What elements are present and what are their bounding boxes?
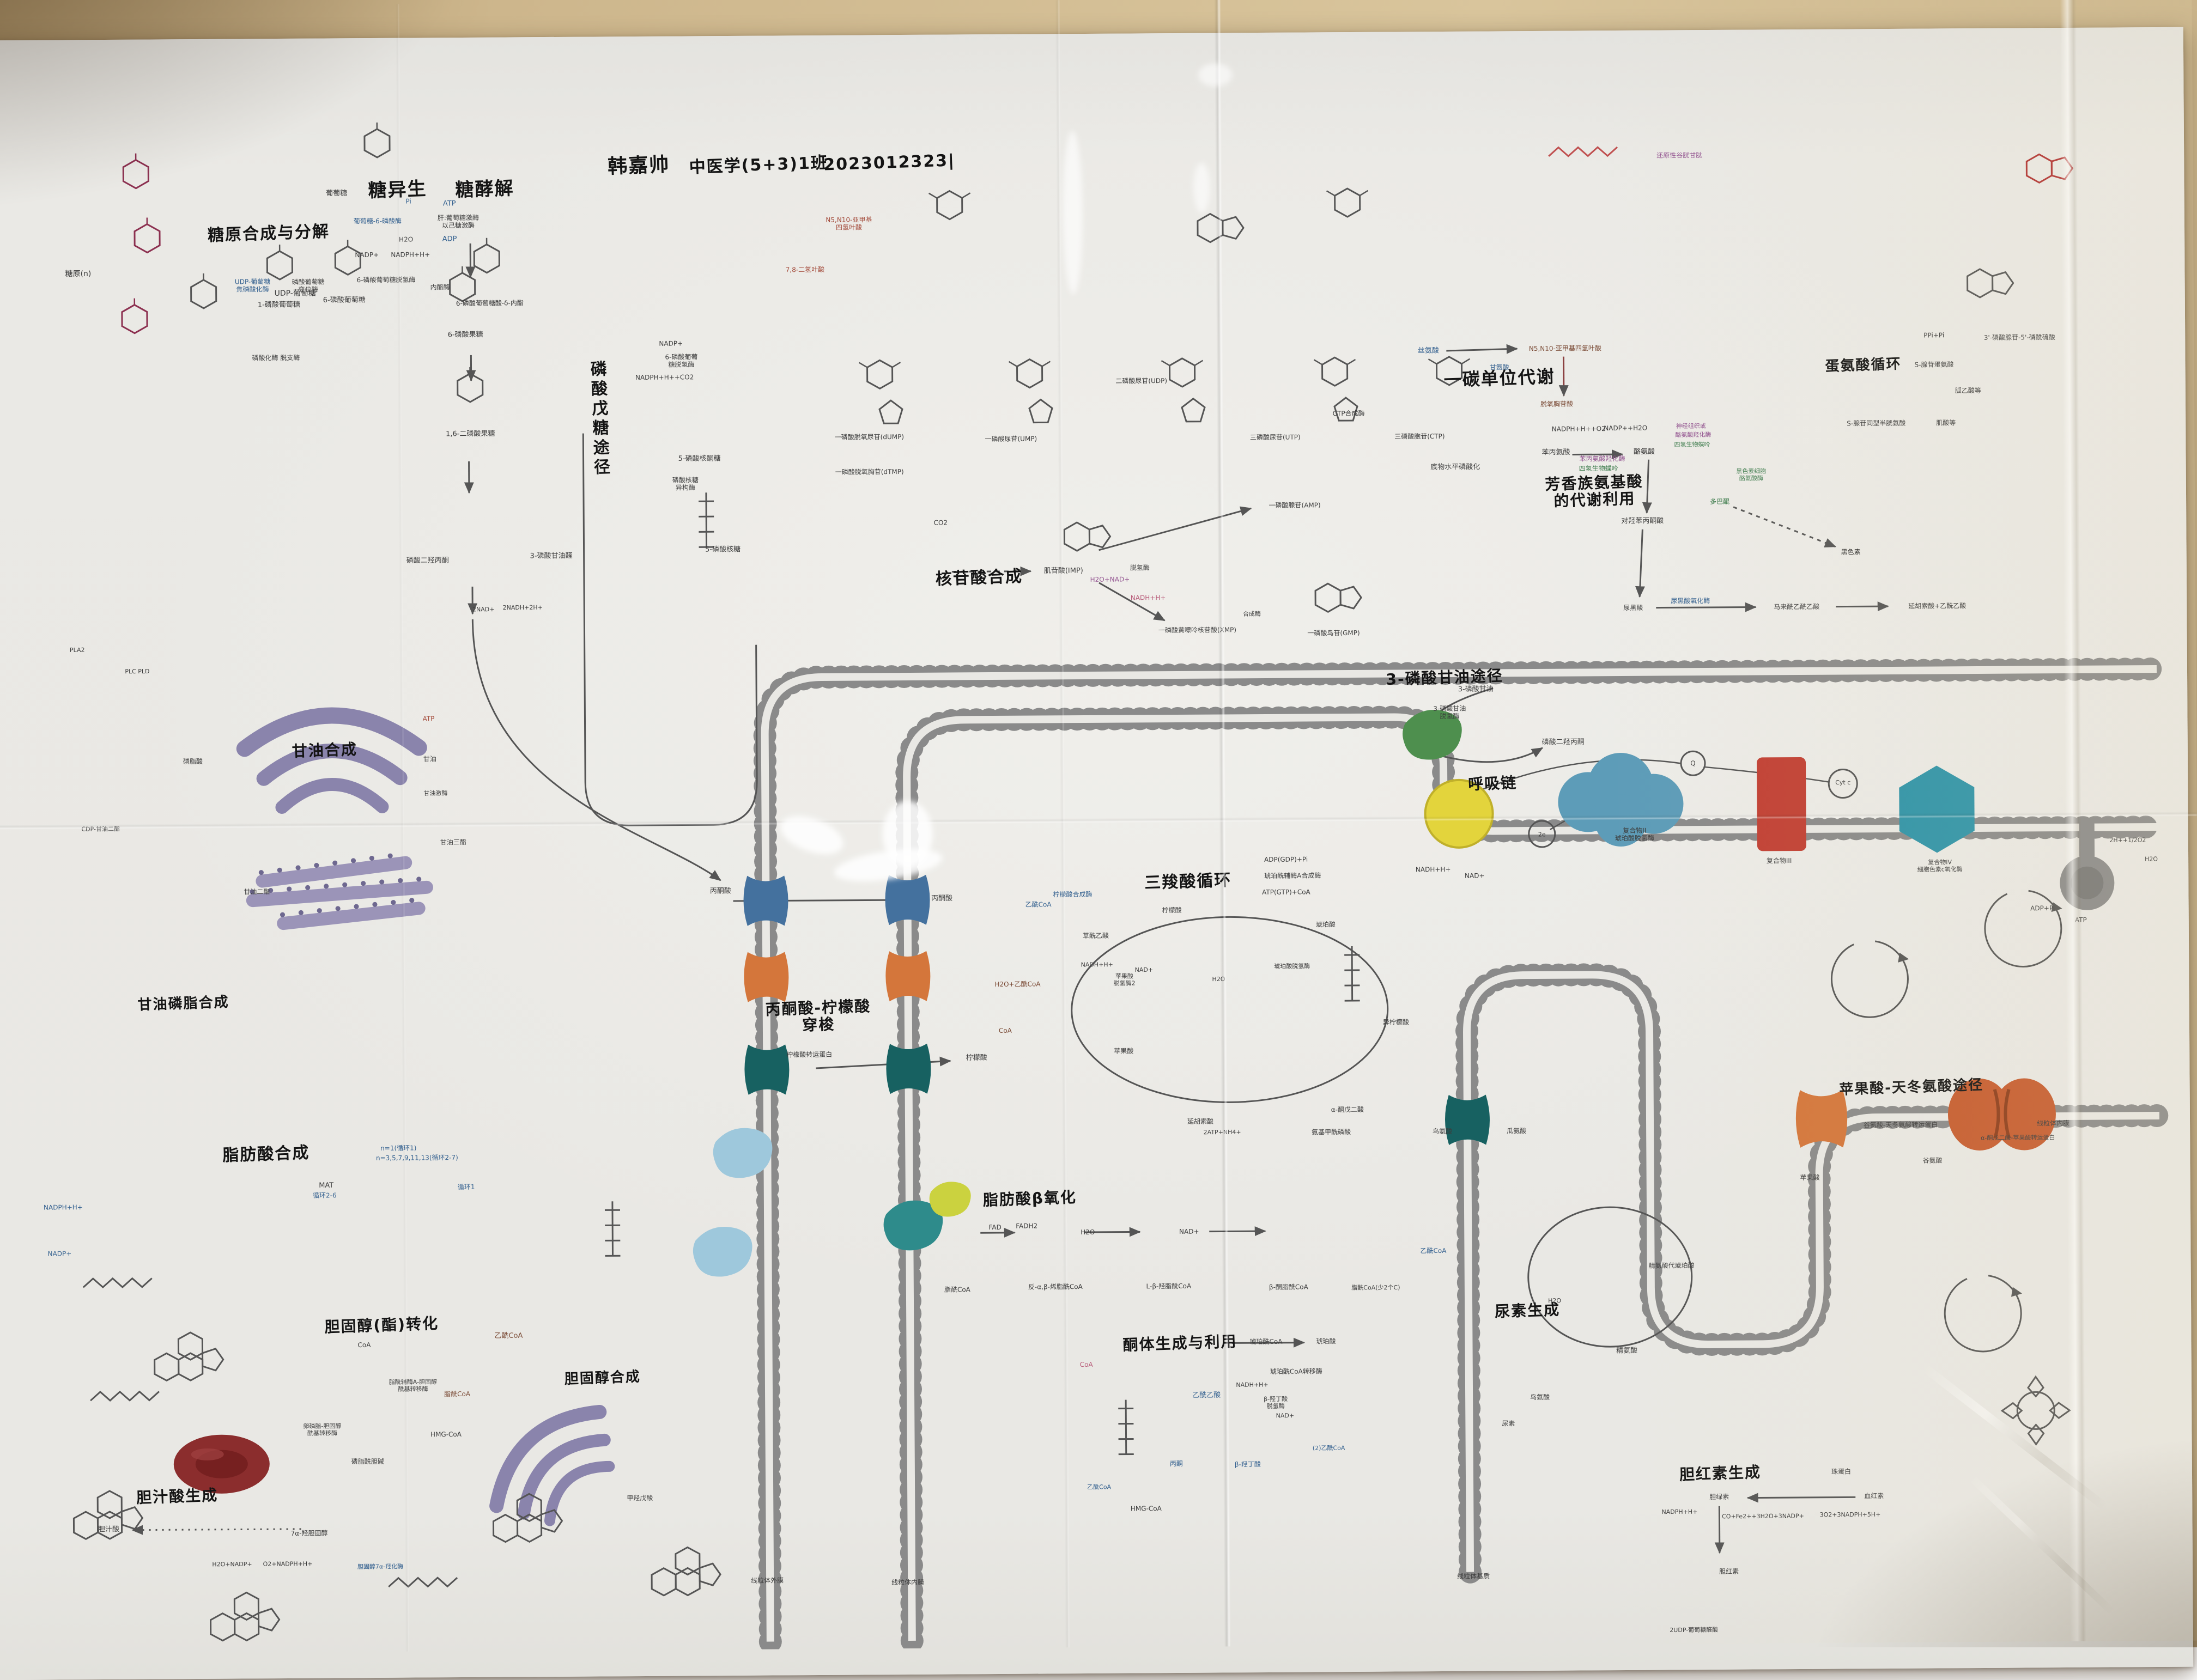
metabolic-pathway-poster: 韩嘉帅 中医学(5+3)1班 2023012323| 糖异生糖酵解糖原合成与分解… <box>0 27 2193 1680</box>
molecule-label: 磷酸化酶 脱支酶 <box>252 354 300 362</box>
molecule-label: 6-磷酸葡萄糖酸-δ-内酯 <box>456 299 524 307</box>
molecule-label: 乙酰CoA <box>1087 1484 1111 1491</box>
molecule-label: NADP+ <box>355 251 379 259</box>
molecule-label: 酪氨酸羟化酶 <box>1675 431 1711 439</box>
molecule-label: 延胡索酸+乙酰乙酸 <box>1908 602 1966 610</box>
section-title-glycogen-synthesis-breakdown: 糖原合成与分解 <box>208 223 330 245</box>
molecule-label: 丙酮酸 <box>931 894 952 903</box>
molecule-label: NADH+H+ <box>1236 1381 1268 1389</box>
molecule-label: 多巴醌 <box>1710 498 1729 506</box>
molecule-label: FAD <box>989 1224 1002 1231</box>
pur-glyph <box>1315 583 1361 612</box>
molecule-label: ADP <box>442 235 457 243</box>
molecule-label: 磷酸葡萄糖 变位酶 <box>292 278 325 294</box>
pyruvate-transporter-inner <box>885 875 930 925</box>
molecule-label: 1-磷酸葡萄糖 <box>258 301 300 309</box>
molecule-label: MAT <box>319 1182 333 1190</box>
pent-glyph <box>879 400 902 423</box>
molecule-label: 磷酸核糖 异构酶 <box>672 476 699 492</box>
molecule-label: 复合物IV 细胞色素c氧化酶 <box>1917 859 1963 873</box>
hex-glyph <box>123 153 148 188</box>
tape-strip <box>1198 63 1232 86</box>
chain-glyph <box>699 492 714 547</box>
molecule-label: 线粒体内膜 <box>891 1579 924 1587</box>
molecule-label: NAD+ <box>1179 1228 1199 1235</box>
molecule-label: 脱氢酶 <box>1130 564 1150 571</box>
molecule-label: 三磷酸胞苷(CTP) <box>1394 433 1445 441</box>
molecule-label: PLC PLD <box>125 668 149 675</box>
citrate-transporter-outer <box>744 1044 790 1094</box>
tca-cycle-ring <box>1071 916 1388 1104</box>
hex-glyph <box>122 299 147 333</box>
zig-glyph <box>389 1578 457 1587</box>
pent-glyph <box>1029 399 1052 422</box>
molecule-label: Pi <box>405 197 411 205</box>
molecule-label: 三磷酸尿苷(UTP) <box>1250 434 1301 442</box>
molecule-label: n=3,5,7,9,11,13(循环2-7) <box>376 1154 458 1162</box>
ketoglutarate-malate-transporter-outer <box>744 952 789 1002</box>
molecule-label: 一磷酸脱氧胸苷(dTMP) <box>835 468 904 476</box>
molecule-label: 甘油激酶 <box>423 790 447 798</box>
molecule-label: 鸟氨酸 <box>1433 1128 1452 1135</box>
molecule-label: FADH2 <box>1016 1222 1037 1229</box>
molecule-label: 葡萄糖 <box>326 190 347 198</box>
molecule-label: 脱氧胸苷酸 <box>1540 400 1573 408</box>
molecule-label: CoA <box>1080 1361 1093 1368</box>
hex-glyph <box>365 123 390 157</box>
molecule-label: 2ATP+NH4+ <box>1204 1129 1241 1136</box>
molecule-label: S-腺苷蛋氨酸 <box>1915 361 1954 369</box>
molecule-label: 苹果酸 <box>1800 1174 1820 1182</box>
molecule-label: H2O+NADP+ <box>212 1561 252 1568</box>
molecule-label: 复合物II 琥珀酸脱氢酶 <box>1615 826 1654 842</box>
molecule-label: 2UDP-葡萄糖醛酸 <box>1670 1627 1718 1634</box>
section-title-cholesterol-synthesis: 胆固醇合成 <box>564 1369 641 1388</box>
molecule-label: α-酮戊二酸-苹果酸转运蛋白 <box>1981 1135 2055 1142</box>
molecule-label: 磷酸二羟丙酮 <box>1542 738 1585 747</box>
molecule-label: 2H++1/2O2 <box>2109 837 2146 844</box>
molecule-label: 一磷酸鸟苷(GMP) <box>1307 629 1360 637</box>
hex-glyph <box>458 367 483 402</box>
cyc-glyph <box>1984 890 2062 967</box>
molecule-label: β-酮脂酰CoA <box>1269 1283 1308 1291</box>
molecule-label: 琥珀酸 <box>1316 1337 1336 1345</box>
smooth-er <box>479 1393 631 1541</box>
pyr-glyph <box>1009 359 1050 387</box>
molecule-label: ATP <box>2075 916 2087 924</box>
molecule-label: 6-磷酸葡萄 糖脱氢酶 <box>665 353 697 369</box>
molecule-label: 6-磷酸葡萄糖 <box>323 296 366 305</box>
molecule-label: NADH+H+ <box>1081 961 1113 969</box>
zig-glyph <box>83 1278 152 1287</box>
molecule-label: H2O+乙酰CoA <box>994 980 1040 988</box>
photo-scene: 韩嘉帅 中医学(5+3)1班 2023012323| 糖异生糖酵解糖原合成与分解… <box>0 0 2197 1647</box>
section-title-nucleotide-synthesis: 核苷酸合成 <box>935 568 1023 589</box>
molecule-label: 2NAD+ <box>472 606 495 613</box>
molecule-label: 3-磷酸甘油醛 <box>530 552 573 561</box>
pyr-glyph <box>929 191 970 219</box>
molecule-label: NADH+H+ <box>1131 594 1166 602</box>
molecule-label: ADP(GDP)+Pi <box>1264 855 1308 863</box>
molecule-label: 对羟苯丙酮酸 <box>1621 517 1664 526</box>
golgi-apparatus <box>244 715 419 807</box>
molecule-label: 丙酮 <box>1170 1460 1183 1468</box>
molecule-label: 复合物III <box>1767 857 1792 865</box>
molecule-label: 谷氨酸 <box>1922 1156 1942 1164</box>
molecule-label: NADP+ <box>48 1250 72 1257</box>
molecule-label: 二磷酸尿苷(UDP) <box>1115 377 1167 385</box>
pur-glyph <box>2026 154 2072 183</box>
molecule-label: 鸟氨酸 <box>1530 1393 1550 1401</box>
molecule-label: 3-磷酸甘油 <box>1458 685 1494 694</box>
section-title-bilirubin-synthesis: 胆红素生成 <box>1679 1464 1761 1483</box>
molecule-label: 内酯酶 <box>430 283 450 291</box>
chain-glyph <box>605 1201 621 1256</box>
molecule-label: (2)乙酰CoA <box>1313 1445 1345 1452</box>
molecule-label: HMG-CoA <box>430 1431 462 1439</box>
section-title-glycerol-synthesis: 甘油合成 <box>292 741 357 760</box>
molecule-label: 谷氨酸-天冬氨酸转运蛋白 <box>1864 1121 1938 1129</box>
molecule-label: CDP-甘油二酯 <box>81 826 120 833</box>
molecule-label: CoA <box>999 1027 1012 1034</box>
hex-glyph <box>135 217 160 252</box>
membrane-transporters <box>690 706 2057 1277</box>
molecule-label: S-腺苷同型半胱氨酸 <box>1847 419 1905 428</box>
molecule-label: 延胡索酸 <box>1187 1118 1213 1125</box>
molecule-label: α-酮戊二酸 <box>1331 1106 1364 1114</box>
molecule-label: 6-磷酸果糖 <box>448 331 483 339</box>
molecule-label: 线粒体基质 <box>1457 1572 1490 1580</box>
molecule-label: CO+Fe2++3H2O+3NADP+ <box>1722 1513 1804 1520</box>
molecule-label: NADPH+H+ <box>1661 1509 1697 1516</box>
molecule-label: 苹果酸 <box>1114 1047 1133 1055</box>
molecule-label: 肌苷酸(IMP) <box>1044 567 1083 575</box>
ster-glyph <box>210 1592 280 1641</box>
molecule-label: 2e <box>1538 831 1546 838</box>
citrate-transporter-inner <box>886 1044 931 1094</box>
carnitine-acyltransferase-1 <box>693 1227 752 1277</box>
molecule-label: Cyt c <box>1835 780 1850 787</box>
molecule-label: H2O <box>399 235 413 243</box>
section-title-fatty-acid-synthesis: 脂肪酸合成 <box>222 1144 310 1165</box>
molecule-label: 四氢生物蝶呤 <box>1579 465 1618 473</box>
chemical-structure-glyphs <box>65 112 2081 1641</box>
section-title-glycolysis: 糖酵解 <box>455 178 514 201</box>
molecule-label: NAD+ <box>1135 967 1154 974</box>
molecule-label: 甘油 <box>423 755 436 763</box>
student-name: 韩嘉帅 <box>608 154 670 178</box>
molecule-label: PPi+Pi <box>1923 331 1944 339</box>
molecule-label: 胍乙酸等 <box>1955 387 1981 394</box>
molecule-label: CO2 <box>934 519 948 526</box>
molecule-label: 一磷酸脱氧尿苷(dUMP) <box>835 433 904 441</box>
pyruvate-transporter-outer <box>743 875 788 926</box>
section-title-methionine-cycle: 蛋氨酸循环 <box>1825 356 1902 375</box>
red-blood-cell <box>173 1434 270 1494</box>
molecule-label: 糖原(n) <box>65 270 92 279</box>
pyr-glyph <box>1314 357 1355 386</box>
molecule-label: 神经组织或 <box>1676 423 1706 430</box>
molecule-label: NADPH+H++O2 <box>1552 425 1606 433</box>
molecule-label: 脂酰辅酶A-胆固醇 酰基转移酶 <box>389 1379 437 1393</box>
molecule-label: 一磷酸尿苷(UMP) <box>985 435 1037 443</box>
molecule-label: β-羟丁酸 <box>1235 1460 1261 1468</box>
molecule-label: H2O <box>1081 1228 1095 1236</box>
molecule-label: 柠檬酸 <box>966 1054 987 1062</box>
hex-glyph <box>191 273 216 308</box>
molecule-label: CTP合成酶 <box>1333 410 1365 418</box>
molecule-label: 琥珀酰辅酶A合成酶 <box>1264 872 1321 880</box>
molecule-label: 葡萄糖-6-磷酸酶 <box>354 217 402 226</box>
tape-strip <box>1193 163 1210 213</box>
molecule-label: 1,6-二磷酸果糖 <box>446 430 495 439</box>
molecule-label: O2+NADPH+H+ <box>263 1561 313 1568</box>
ster-glyph <box>154 1332 223 1381</box>
molecule-label: ATP <box>443 199 456 208</box>
complex-iv <box>1899 765 1975 853</box>
section-title-aromatic-aa-metabolism: 芳香族氨基酸 的代谢利用 <box>1545 473 1644 510</box>
molecule-label: 珠蛋白 <box>1831 1468 1851 1475</box>
molecule-label: 黑色素细胞 酪氨酸酶 <box>1736 468 1766 482</box>
molecule-label: 2NADH+2H+ <box>503 605 543 612</box>
molecule-label: 精氨酸 <box>1616 1347 1637 1355</box>
section-title-glycerophospholipid-synthesis: 甘油磷脂合成 <box>137 995 229 1014</box>
molecule-label: NADPH+H+ <box>391 251 430 259</box>
molecule-label: 琥珀酰CoA <box>1249 1338 1282 1346</box>
pyr-glyph <box>1327 188 1368 217</box>
molecule-label: 一磷酸腺苷(AMP) <box>1269 501 1320 509</box>
molecule-label: 琥珀酸脱氢酶 <box>1274 963 1310 970</box>
molecule-label: 甘油三酯 <box>440 838 466 846</box>
molecule-label: 胆绿素 <box>1709 1493 1729 1501</box>
molecule-label: 3-磷酸甘油 脱氢酶 <box>1433 705 1466 721</box>
pentose-loop <box>583 433 757 826</box>
molecule-label: 胆固醇7α-羟化酶 <box>357 1563 403 1571</box>
section-title-respiratory-chain: 呼吸链 <box>1468 774 1518 793</box>
molecule-label: H2O <box>1212 976 1225 983</box>
molecule-label: 尿黑酸 <box>1623 604 1643 612</box>
molecule-label: 脂酰CoA <box>444 1390 470 1398</box>
molecule-label: ATP <box>422 715 434 722</box>
zig-glyph <box>90 1391 159 1401</box>
molecule-label: 苹果酸 脱氢酶2 <box>1113 973 1135 987</box>
complex-iii <box>1757 757 1806 851</box>
molecule-label: N5,N10-亚甲基四氢叶酸 <box>1529 344 1601 352</box>
mito-inner-membrane-right <box>1466 971 2162 1572</box>
molecule-label: 酪氨酸 <box>1634 448 1655 456</box>
cyc-glyph <box>1831 941 1909 1018</box>
molecule-label: 线粒体内膜 <box>2037 1119 2069 1128</box>
urea-cycle-ring <box>1528 1207 1692 1347</box>
carnitine-translocase <box>929 1182 970 1217</box>
molecule-label: 马来酰乙酰乙酸 <box>1774 603 1819 611</box>
molecule-label: 甲羟戊酸 <box>627 1494 653 1502</box>
molecule-label: 5-磷酸核酮糖 <box>678 454 721 463</box>
molecule-label: ADP+Pi <box>2030 904 2055 912</box>
molecule-label: 肝:葡萄糖激酶 以己糖激酶 <box>438 214 479 230</box>
molecule-label: CoA <box>357 1341 371 1349</box>
section-title-pyruvate-citrate-shuttle: 丙酮酸-柠檬酸 穿梭 <box>765 997 872 1035</box>
pur-glyph <box>1064 522 1110 551</box>
molecule-label: β-羟丁酸 脱氢酶 <box>1264 1396 1288 1410</box>
molecule-label: L-β-羟脂酰CoA <box>1146 1282 1191 1291</box>
molecule-label: 异柠檬酸 <box>1383 1018 1409 1026</box>
pyr-glyph <box>859 360 900 388</box>
molecule-label: 循环2-6 <box>313 1191 337 1199</box>
pent-glyph <box>1182 399 1205 422</box>
molecule-label: 血红素 <box>1864 1492 1884 1500</box>
section-title-cholesterol-ester-conversion: 胆固醇(酯)转化 <box>324 1315 439 1336</box>
molecule-label: 脂酰CoA <box>944 1286 970 1293</box>
molecule-label: 氨基甲酰磷酸 <box>1312 1128 1351 1136</box>
section-title-tca-cycle: 三羧酸循环 <box>1144 871 1232 892</box>
pur-glyph <box>1198 214 1243 242</box>
molecule-label: 乙酰CoA <box>1025 900 1052 908</box>
molecule-label: 柠檬酸合成酶 <box>1053 891 1092 899</box>
molecule-label: PLA2 <box>70 647 85 654</box>
molecule-label: 磷脂酰胆碱 <box>351 1458 384 1466</box>
molecule-label: 7,8-二氢叶酸 <box>786 266 825 274</box>
pathway-arrows <box>124 235 1894 1563</box>
molecule-label: 一磷酸黄嘌呤核苷酸(XMP) <box>1158 626 1236 634</box>
molecule-label: 尿黑酸氧化酶 <box>1671 597 1710 605</box>
molecule-label: 线粒体外膜 <box>751 1576 784 1585</box>
pur-glyph <box>1967 269 2013 298</box>
molecule-label: NADH+H+ <box>1416 866 1451 874</box>
molecule-label: 乙酰乙酸 <box>1192 1391 1221 1400</box>
molecule-label: 5-磷酸核糖 <box>705 545 741 554</box>
molecule-label: 还原性谷胱甘肽 <box>1656 151 1702 160</box>
section-title-fatty-acid-beta-oxidation: 脂肪酸β氧化 <box>982 1189 1077 1209</box>
molecule-label: 磷酸二羟丙酮 <box>406 556 449 565</box>
molecule-label: ATP(GTP)+CoA <box>1262 888 1310 896</box>
molecule-label: NADPH+H+ <box>44 1203 83 1212</box>
molecule-label: NADP+ <box>659 339 683 347</box>
zig-glyph <box>1549 147 1617 156</box>
molecule-label: 6-磷酸葡萄糖脱氢酶 <box>357 276 416 284</box>
molecule-label: H2O <box>1548 1298 1561 1305</box>
rough-er <box>252 854 427 923</box>
molecule-label: NAD+ <box>1465 872 1485 879</box>
molecule-label: 琥珀酸 <box>1316 921 1336 928</box>
section-title-bile-acid-synthesis: 胆汁酸生成 <box>136 1487 219 1506</box>
molecule-label: 乙酰CoA <box>1420 1247 1446 1255</box>
section-title-ketone-body-synthesis-utilization: 酮体生成与利用 <box>1122 1333 1237 1354</box>
molecule-label: 磷脂酸 <box>183 758 203 765</box>
ster-glyph <box>652 1547 721 1596</box>
molecule-label: HMG-CoA <box>1131 1505 1162 1513</box>
molecule-label: UDP-葡萄糖 焦磷酸化酶 <box>235 278 270 294</box>
molecule-label: 瓜氨酸 <box>1507 1127 1526 1135</box>
cyc-glyph <box>1945 1275 2023 1352</box>
molecule-label: NADP++H2O <box>1604 424 1647 433</box>
hex-glyph <box>267 245 292 279</box>
molecule-label: N5,N10-亚甲基 四氢叶酸 <box>826 216 872 232</box>
molecule-label: 反-α,β-烯脂酰CoA <box>1028 1283 1083 1291</box>
paper-scuff <box>882 801 933 868</box>
diagram-artwork <box>0 0 2197 1654</box>
chain-glyph <box>1118 1399 1134 1454</box>
molecule-label: 琥珀酰CoA转移酶 <box>1270 1367 1322 1375</box>
molecule-label: 尿素 <box>1502 1420 1515 1427</box>
chain-glyph <box>1344 946 1360 1001</box>
molecule-label: NADPH+H++CO2 <box>635 373 694 381</box>
molecule-label: 丝氨酸 <box>1418 346 1439 355</box>
molecule-label: 脂酰CoA(少2个C) <box>1351 1285 1400 1292</box>
molecule-label: 卵磷脂-胆固醇 酰基转移酶 <box>303 1423 341 1437</box>
molecule-label: 柠檬酸转运蛋白 <box>786 1051 832 1059</box>
mito-inner-membrane <box>906 713 2162 1641</box>
molecule-label: n=1(循环1) <box>380 1144 416 1152</box>
molecule-label: 胆汁酸 <box>98 1525 119 1534</box>
glutamate-aspartate-transporter <box>1796 1090 1848 1148</box>
molecule-label: H2O+NAD+ <box>1090 575 1130 583</box>
molecule-label: 草酰乙酸 <box>1083 932 1109 940</box>
molecule-label: 甘油二酯 <box>244 888 270 896</box>
molecule-label: 苯丙氨酸羟化酶 <box>1580 455 1625 463</box>
molecule-label: 7α-羟胆固醇 <box>291 1529 328 1537</box>
molecule-label: Q <box>1690 759 1696 767</box>
molecule-label: 丙酮酸 <box>710 887 731 896</box>
molecule-label: 循环1 <box>458 1183 475 1191</box>
molecule-label: 乙酰CoA <box>494 1332 523 1341</box>
molecule-label: 底物水平磷酸化 <box>1430 463 1480 472</box>
section-title-pentose-phosphate-pathway: 磷酸戊糖途径 <box>587 360 610 478</box>
molecule-label: 3O2+3NADPH+5H+ <box>1820 1512 1881 1519</box>
molecule-label: 肌酸等 <box>1936 419 1956 427</box>
pyr-glyph <box>1161 358 1203 387</box>
section-title-gluconeogenesis: 糖异生 <box>368 179 427 202</box>
poster-content: 韩嘉帅 中医学(5+3)1班 2023012323| 糖异生糖酵解糖原合成与分解… <box>0 0 2197 1654</box>
molecule-label: 甘氨酸 <box>1490 363 1509 371</box>
molecule-label: 胆红素 <box>1719 1568 1739 1575</box>
molecule-label: NAD+ <box>1276 1413 1295 1420</box>
hex-glyph <box>474 238 499 273</box>
ornithine-citrulline-transporter <box>1445 1094 1490 1145</box>
molecule-label: 四氢生物蝶呤 <box>1674 442 1710 449</box>
ketoglutarate-malate-transporter-inner <box>885 951 931 1001</box>
molecule-label: 精氨酸代琥珀酸 <box>1649 1262 1695 1270</box>
molecule-label: 黑色素 <box>1841 548 1861 556</box>
molecule-label: 苯丙氨酸 <box>1541 448 1570 457</box>
molecule-label: 柠檬酸 <box>1162 906 1182 914</box>
molecule-label: 合成酶 <box>1243 611 1261 618</box>
molecule-label: 3'-磷酸腺苷-5'-磷酰硫酸 <box>1984 333 2055 342</box>
molecule-label: H2O <box>2145 856 2158 863</box>
